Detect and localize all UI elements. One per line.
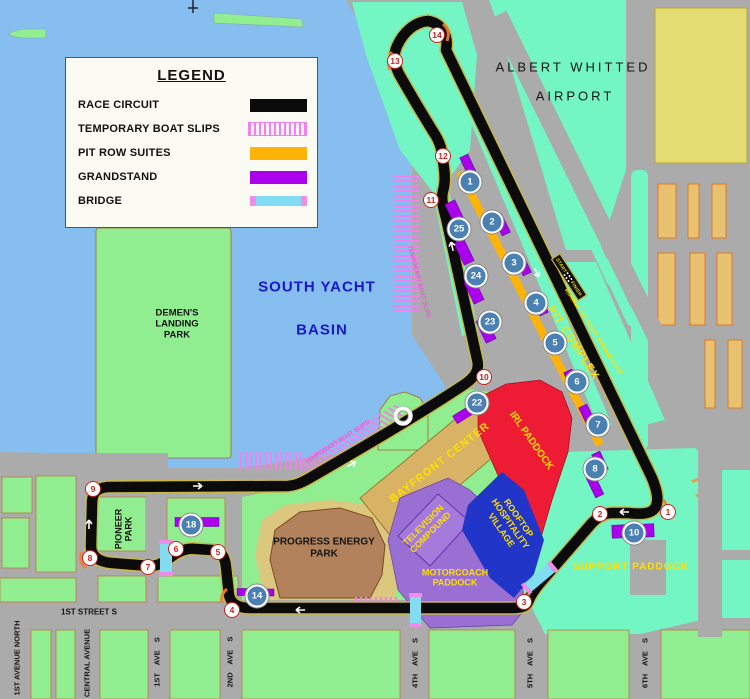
circuit-map: LEGEND RACE CIRCUIT TEMPORARY BOAT SLIPS… bbox=[0, 0, 750, 699]
boat-slips-swatch bbox=[248, 122, 307, 136]
grandstand-marker-3: 3 bbox=[503, 252, 526, 275]
grandstand-marker-2: 2 bbox=[481, 211, 504, 234]
grandstand-marker-4: 4 bbox=[525, 292, 548, 315]
grandstand-marker-25: 25 bbox=[448, 218, 471, 241]
grandstand-swatch bbox=[250, 171, 307, 184]
grandstand-marker-6: 6 bbox=[566, 371, 589, 394]
grandstand-marker-24: 24 bbox=[465, 265, 488, 288]
legend-title: LEGEND bbox=[66, 67, 317, 84]
legend-item-race-circuit: RACE CIRCUIT bbox=[78, 93, 307, 117]
turn-marker-8: 8 bbox=[82, 550, 98, 566]
legend-item-boat-slips: TEMPORARY BOAT SLIPS bbox=[78, 117, 307, 141]
legend-item-pit-row: PIT ROW SUITES bbox=[78, 141, 307, 165]
boat-slips bbox=[393, 176, 419, 311]
legend: LEGEND RACE CIRCUIT TEMPORARY BOAT SLIPS… bbox=[65, 57, 318, 228]
turn-marker-9: 9 bbox=[85, 481, 101, 497]
grandstand-marker-7: 7 bbox=[587, 414, 610, 437]
grandstand-marker-10: 10 bbox=[623, 522, 646, 545]
khaki-block bbox=[655, 8, 747, 163]
grandstand-marker-14: 14 bbox=[246, 585, 269, 608]
turn-marker-4: 4 bbox=[224, 602, 240, 618]
grandstand-marker-5: 5 bbox=[544, 332, 567, 355]
turn-marker-5: 5 bbox=[210, 544, 226, 560]
demens-landing bbox=[96, 228, 231, 458]
legend-item-bridge: BRIDGE bbox=[78, 189, 307, 213]
grandstand-marker-23: 23 bbox=[479, 311, 502, 334]
grandstand-marker-8: 8 bbox=[584, 458, 607, 481]
turn-marker-3: 3 bbox=[516, 594, 532, 610]
turn-marker-12: 12 bbox=[435, 148, 451, 164]
boat-slips bbox=[240, 452, 302, 470]
turn-marker-11: 11 bbox=[423, 192, 439, 208]
turn-marker-13: 13 bbox=[387, 53, 403, 69]
legend-item-grandstand: GRANDSTAND bbox=[78, 165, 307, 189]
grandstand-marker-1: 1 bbox=[459, 171, 482, 194]
race-circuit-swatch bbox=[250, 99, 307, 112]
bridge-swatch bbox=[250, 196, 307, 206]
progress-field bbox=[270, 508, 385, 598]
pit-row-swatch bbox=[250, 147, 307, 160]
turn-marker-14: 14 bbox=[429, 27, 445, 43]
turn-marker-1: 1 bbox=[660, 504, 676, 520]
turn-marker-7: 7 bbox=[140, 559, 156, 575]
grandstand-marker-22: 22 bbox=[466, 392, 489, 415]
turn-marker-2: 2 bbox=[592, 506, 608, 522]
grandstand-marker-18: 18 bbox=[180, 514, 203, 537]
turn-marker-6: 6 bbox=[168, 541, 184, 557]
turn-marker-10: 10 bbox=[476, 369, 492, 385]
green-patch bbox=[718, 470, 750, 550]
